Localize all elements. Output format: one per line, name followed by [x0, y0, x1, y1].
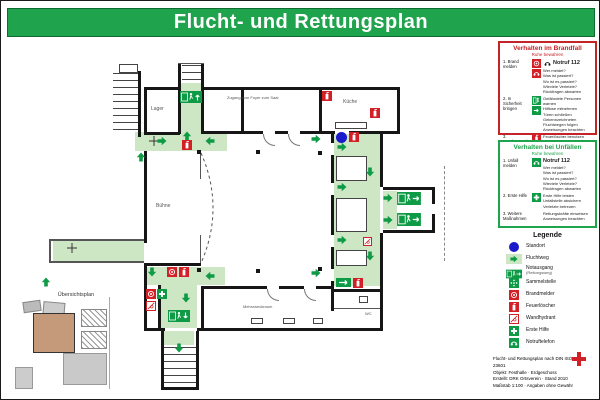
- wall: [197, 328, 383, 331]
- wall: [144, 132, 180, 135]
- wall: [275, 131, 288, 134]
- fixture: [283, 318, 295, 324]
- fire-step-1: 1. Brand melden Notruf 112 Wer meldet?Wa…: [503, 59, 592, 94]
- legend-row: Standort: [498, 241, 597, 253]
- overview-building: [15, 367, 33, 389]
- kitchen-counter: [335, 122, 367, 129]
- escape-route-icon: [506, 254, 522, 264]
- east-room-1: [336, 156, 367, 181]
- legend-title: Legende: [498, 232, 597, 239]
- wall: [383, 230, 435, 233]
- column: [256, 150, 260, 154]
- panel-title: Verhalten bei Unfällen: [503, 144, 592, 151]
- wall: [138, 71, 141, 137]
- wall: [432, 187, 435, 204]
- fire-extinguisher-icon: [509, 302, 519, 312]
- location-icon: [336, 132, 347, 143]
- accident-step-2: 2. Erste Hilfe Erste Hilfe leistenUnfall…: [503, 193, 592, 209]
- emergency-exit-sign-icon: [396, 213, 422, 226]
- panel-subtitle: Ruhe bewahren: [503, 52, 592, 57]
- wall: [201, 286, 204, 328]
- fire-extinguisher-icon: [179, 267, 189, 277]
- stage-edge: [200, 235, 201, 263]
- route-arrow-icon: [532, 106, 541, 115]
- route-arrow-icon: [136, 152, 146, 162]
- wall: [161, 387, 199, 390]
- outside-path-dashed: [444, 166, 445, 261]
- wall: [178, 63, 204, 64]
- room-label: Mehrzweckraum: [243, 304, 272, 309]
- first-aid-icon: [157, 289, 167, 299]
- escape-plan-page: Flucht- und Rettungsplan: [0, 0, 600, 400]
- room-label: WC: [365, 311, 372, 316]
- wall: [331, 247, 334, 269]
- route-arrow-icon: [205, 271, 215, 281]
- step-lines: Rettungskräfte einweisenAnweisungen beac…: [543, 211, 592, 221]
- wall: [49, 239, 144, 241]
- footer-lines: Flucht- und Rettungsplan nach DIN ISO 23…: [493, 356, 577, 390]
- overview-building-highlighted: [33, 313, 75, 353]
- emergency-phone-icon: [532, 158, 541, 167]
- route-arrow-icon: [311, 134, 321, 144]
- stairs-west-annex: [113, 73, 138, 135]
- overview-building: [22, 300, 41, 313]
- emergency-exit-sign-icon: [336, 278, 351, 287]
- wall: [334, 289, 380, 292]
- fire-extinguisher-icon: [322, 91, 332, 101]
- fixture: [313, 318, 323, 324]
- room-note: Zugang vom Foyer zum Saal: [227, 95, 278, 100]
- stage-edge: [200, 151, 201, 179]
- overview-title: Übersichtsplan: [31, 292, 121, 298]
- route-arrow-icon: [337, 182, 347, 192]
- route-arrow-icon: [205, 136, 215, 146]
- route-arrow-icon: [311, 268, 321, 278]
- red-cross-icon: [571, 351, 587, 367]
- fire-extinguisher-icon: [182, 140, 192, 150]
- wall: [316, 286, 334, 289]
- assembly-point-icon: [509, 278, 519, 288]
- step-lines: Wer meldet?Was ist passiert?Wo ist es pa…: [543, 165, 592, 191]
- fire-alarm-icon: [532, 59, 541, 68]
- door-arc: [267, 289, 279, 301]
- emergency-number: Notruf 112: [543, 59, 592, 68]
- emergency-exit-icon: [532, 96, 541, 105]
- title-banner: Flucht- und Rettungsplan: [7, 8, 595, 37]
- wall: [397, 87, 400, 134]
- panel-subtitle: Ruhe bewahren: [503, 151, 592, 156]
- overview-hatched-area: [81, 331, 107, 349]
- legend-row: Brandmelder: [498, 289, 597, 301]
- accident-step-3: 3. Weitere Maßnahmen Rettungskräfte einw…: [503, 211, 592, 221]
- wall: [331, 131, 334, 143]
- wall: [144, 87, 147, 132]
- route-arrow-icon: [383, 193, 393, 203]
- door-arc: [304, 289, 316, 301]
- emergency-exit-sign-icon: [396, 192, 422, 205]
- wall: [178, 63, 181, 89]
- stairs-top: [182, 65, 201, 83]
- fire-extinguisher-icon: [349, 132, 359, 142]
- overview-building: [63, 353, 107, 385]
- route-arrow-icon: [147, 267, 157, 277]
- first-aid-icon: [509, 326, 519, 336]
- wall: [49, 261, 144, 263]
- wall: [49, 239, 51, 263]
- step-lines: Wer meldet?Was ist passiert?Wo ist es pa…: [543, 68, 592, 94]
- fire-extinguisher-icon: [353, 278, 363, 288]
- room-label: Küche: [343, 99, 357, 105]
- wall: [147, 263, 201, 266]
- step-lines: Gefährdete Personen warnenHilflose mitne…: [543, 96, 592, 132]
- route-arrow-icon: [174, 343, 184, 353]
- emergency-exit-sign-icon: [180, 91, 202, 103]
- wall: [380, 233, 383, 328]
- route-arrow-icon: [41, 277, 51, 287]
- wall: [196, 331, 199, 389]
- column: [256, 269, 260, 273]
- wall: [204, 131, 263, 134]
- emergency-exit-sign-icon: [168, 310, 190, 322]
- overview-road: [109, 297, 110, 389]
- legend-row: Notausgang(Rettungsweg): [498, 265, 597, 277]
- fire-alarm-icon: [146, 289, 156, 299]
- page-title: Flucht- und Rettungsplan: [174, 11, 428, 34]
- table-symbol: [67, 243, 77, 253]
- door-arc: [263, 134, 275, 146]
- stairs-bottom: [164, 347, 196, 387]
- east-room-3: [336, 250, 367, 266]
- wall: [144, 87, 178, 90]
- wall: [331, 155, 334, 183]
- column: [318, 151, 322, 155]
- phone-icon: [532, 69, 541, 78]
- wall: [204, 87, 400, 90]
- wall: [432, 214, 435, 233]
- east-room-2: [336, 198, 367, 232]
- step-lines: Feuerlöscher benutzen: [543, 134, 592, 139]
- route-arrow-icon: [365, 167, 375, 177]
- route-arrow-icon: [383, 215, 393, 225]
- wall: [144, 151, 147, 243]
- column: [197, 150, 201, 154]
- step-lines: Erste Hilfe leistenUnfallstelle absicher…: [543, 193, 592, 209]
- column: [197, 268, 201, 272]
- legend-row: Notruftelefon: [498, 337, 597, 349]
- location-icon: [509, 242, 519, 252]
- fixture: [251, 318, 263, 324]
- phone-icon: [543, 59, 552, 68]
- wall: [334, 308, 380, 309]
- wall: [279, 286, 304, 289]
- route-arrow-icon: [181, 293, 191, 303]
- wall-hydrant-icon: [509, 314, 519, 324]
- fire-alarm-icon: [167, 267, 177, 277]
- wall: [201, 286, 267, 289]
- panel-title: Verhalten im Brandfall: [503, 45, 592, 52]
- route-arrow-icon: [157, 136, 167, 146]
- wall-hydrant-icon: [363, 237, 372, 246]
- door-arc: [288, 134, 300, 146]
- wall: [201, 63, 204, 89]
- fire-instructions-panel: Verhalten im Brandfall Ruhe bewahren 1. …: [498, 41, 597, 135]
- route-arrow-icon: [337, 142, 347, 152]
- legend-row: Fluchtweg: [498, 253, 597, 265]
- room-label: Bühne: [156, 203, 170, 209]
- accident-step-1: 1. Unfall melden Notruf 112 Wer meldet?W…: [503, 158, 592, 191]
- accident-instructions-panel: Verhalten bei Unfällen Ruhe bewahren 1. …: [498, 140, 597, 228]
- emergency-exit-icon: [506, 266, 522, 276]
- first-aid-icon: [532, 193, 541, 202]
- stage-curve: [197, 149, 227, 267]
- legend-row: Wandhydrant: [498, 313, 597, 325]
- room-label: Lager: [151, 106, 164, 112]
- legend-row: Erste Hilfe: [498, 325, 597, 337]
- legend-panel: Legende Standort Fluchtweg Notausgang(Re…: [498, 232, 597, 349]
- emergency-number: Notruf 112: [543, 158, 592, 165]
- annex-landing: [119, 64, 138, 73]
- fire-extinguisher-icon: [370, 108, 380, 118]
- wall-hydrant-icon: [146, 301, 156, 311]
- wall: [380, 134, 383, 187]
- fire-alarm-icon: [509, 290, 519, 300]
- wall: [331, 195, 334, 235]
- emergency-phone-icon: [509, 338, 519, 348]
- route-arrow-icon: [337, 235, 347, 245]
- route-arrow-icon: [365, 251, 375, 261]
- legend-row: Feuerlöscher: [498, 301, 597, 313]
- wall: [383, 187, 435, 190]
- fixture: [359, 296, 368, 303]
- legend-row: Sammelstelle: [498, 277, 597, 289]
- overview-hatched-area: [81, 309, 107, 327]
- fire-step-2: 2. In Sicherheit bringen Gefährdete Pers…: [503, 96, 592, 132]
